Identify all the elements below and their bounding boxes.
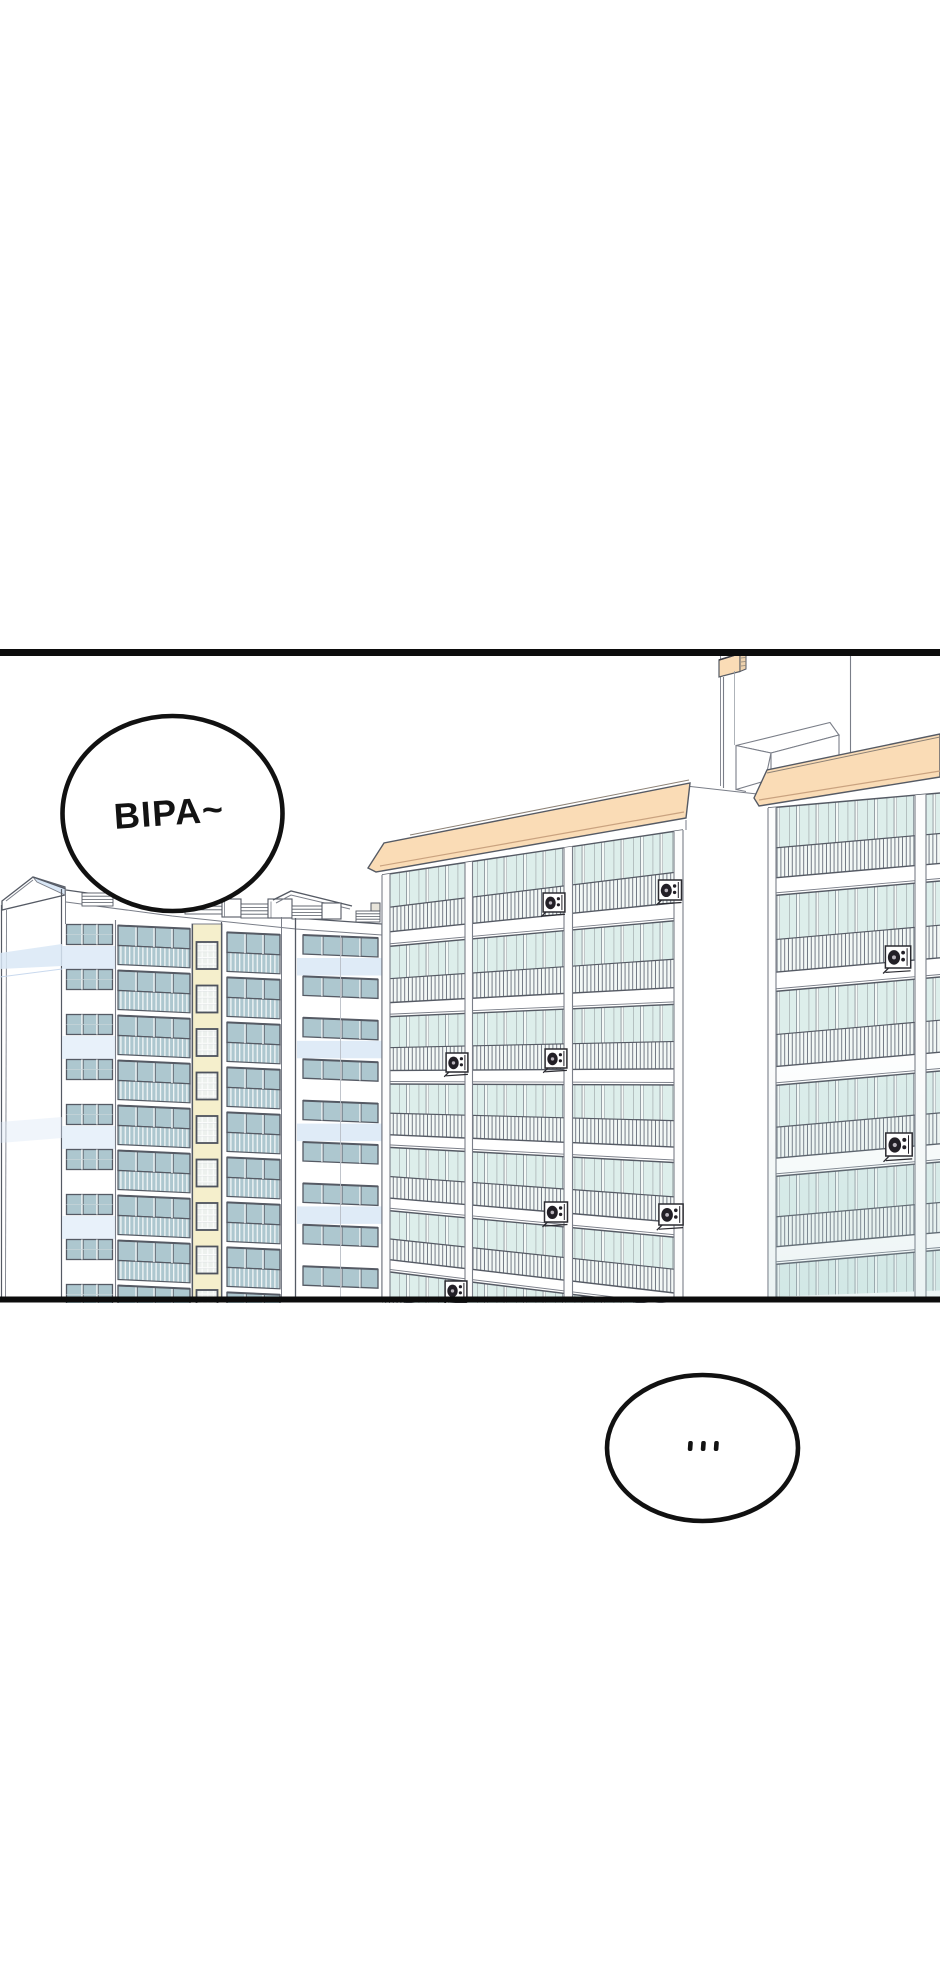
svg-text:BIPA~: BIPA~: [112, 788, 225, 837]
